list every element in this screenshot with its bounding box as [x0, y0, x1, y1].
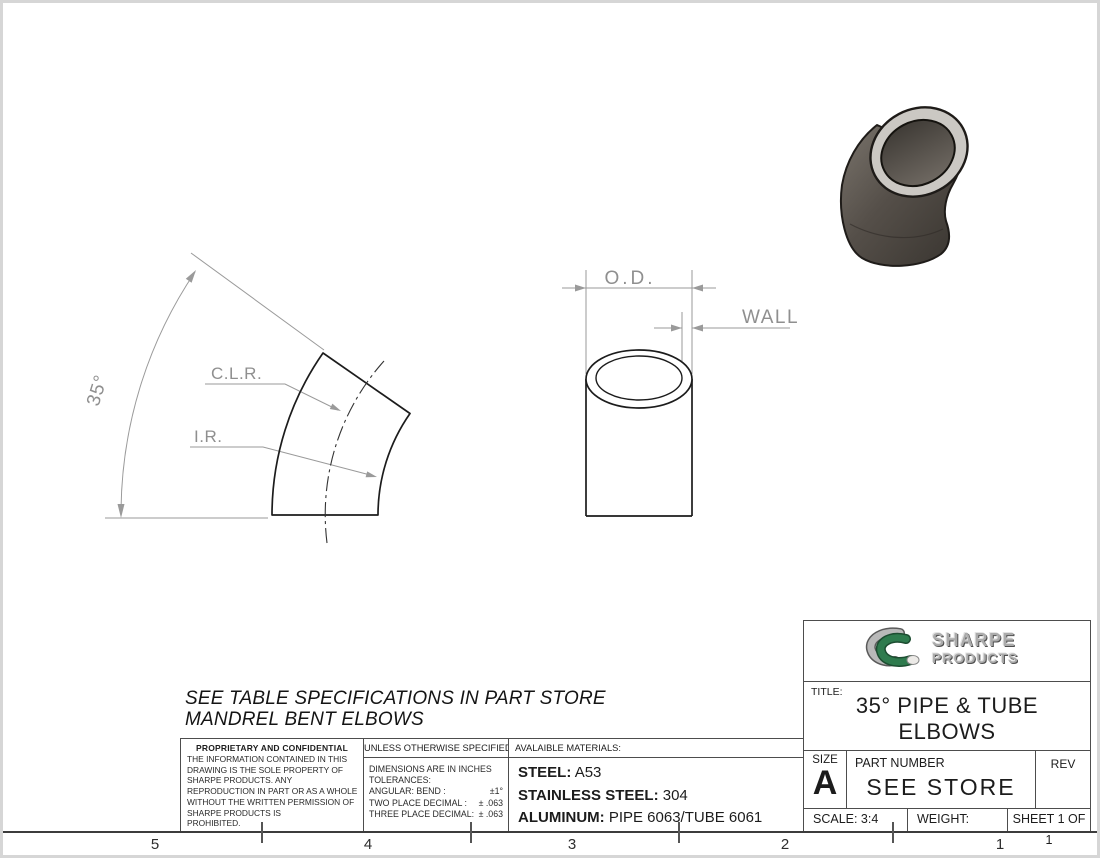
materials-block: AVALAIBLE MATERIALS: STEEL: A53 STAINLES… [508, 738, 804, 833]
drawing-title-line1: 35° PIPE & TUBE [804, 693, 1090, 719]
dimension-arrowheads [575, 285, 703, 332]
brand-name-top: SHARPE [932, 631, 1019, 649]
note-line-1: SEE TABLE SPECIFICATIONS IN PART STORE [185, 688, 606, 709]
proprietary-title: PROPRIETARY AND CONFIDENTIAL [187, 742, 357, 754]
material-label: STEEL: [518, 764, 571, 781]
material-item: STEEL: A53 [518, 762, 794, 785]
tolerance-intro: TOLERANCES: [369, 775, 503, 786]
elbow-outline [272, 353, 410, 515]
part-number-cell: PART NUMBER SEE STORE [847, 751, 1036, 808]
proprietary-text: SHARPE PRODUCTS. ANY [187, 775, 357, 786]
drawing-note: SEE TABLE SPECIFICATIONS IN PART STORE M… [185, 688, 606, 730]
materials-header: AVALAIBLE MATERIALS: [509, 739, 803, 758]
zone-label: 2 [770, 836, 800, 853]
zone-label: 1 [985, 836, 1015, 853]
brand-name-bottom: PRODUCTS [932, 651, 1019, 665]
tolerance-row: ANGULAR: BEND : ±1° [369, 786, 503, 797]
material-value: PIPE 6063/TUBE 6061 [609, 809, 762, 826]
zone-label: 3 [557, 836, 587, 853]
tolerance-intro: DIMENSIONS ARE IN INCHES [369, 764, 503, 775]
weight-label: WEIGHT: [908, 809, 1008, 831]
rev-cell: REV [1036, 751, 1090, 808]
dimension-arrowheads [118, 270, 378, 518]
scale-row: SCALE: 3:4 WEIGHT: SHEET 1 OF 1 [804, 809, 1090, 831]
clr-label: C.L.R. [211, 364, 262, 383]
zone-label: 5 [140, 836, 170, 853]
title-block: SHARPE PRODUCTS TITLE: 35° PIPE & TUBE E… [803, 620, 1091, 832]
proprietary-text: SHARPE PRODUCTS IS [187, 808, 357, 819]
part-number-value: SEE STORE [847, 774, 1035, 801]
drawing-title: 35° PIPE & TUBE ELBOWS [804, 682, 1090, 745]
size-value: A [804, 766, 846, 800]
elbow-bend-view: 35° C.L.R. I.R. [80, 240, 480, 560]
rev-label: REV [1036, 757, 1090, 771]
tolerance-row: THREE PLACE DECIMAL: ± .063 [369, 809, 503, 820]
material-label: STAINLESS STEEL: [518, 787, 659, 804]
zone-tick [261, 822, 263, 843]
proprietary-text: WITHOUT THE WRITTEN PERMISSION OF [187, 797, 357, 808]
material-label: ALUMINUM: [518, 809, 605, 826]
tolerance-label: TWO PLACE DECIMAL : [369, 798, 467, 809]
brand-row: SHARPE PRODUCTS [804, 621, 1090, 682]
wall-label: WALL [742, 307, 799, 328]
size-cell: SIZE A [804, 751, 847, 808]
tolerances-block: UNLESS OTHERWISE SPECIFIED: DIMENSIONS A… [363, 738, 509, 833]
title-row: TITLE: 35° PIPE & TUBE ELBOWS [804, 682, 1090, 751]
tolerance-label: THREE PLACE DECIMAL: [369, 809, 474, 820]
angle-dimension-label: 35° [83, 372, 112, 408]
tolerance-value: ±1° [490, 786, 503, 797]
engineering-drawing-sheet: 35° C.L.R. I.R. O.D. WALL [0, 0, 1100, 858]
part-number-label: PART NUMBER [855, 756, 945, 770]
zone-tick [470, 822, 472, 843]
material-item: ALUMINUM: PIPE 6063/TUBE 6061 [518, 807, 794, 830]
drawing-title-line2: ELBOWS [804, 719, 1090, 745]
part-number-row: SIZE A PART NUMBER SEE STORE REV [804, 751, 1090, 809]
title-label: TITLE: [811, 686, 843, 698]
proprietary-text: PROHIBITED. [187, 818, 357, 829]
tolerance-row: TWO PLACE DECIMAL : ± .063 [369, 798, 503, 809]
sharpe-logo-icon [864, 626, 926, 676]
proprietary-text: DRAWING IS THE SOLE PROPERTY OF [187, 765, 357, 776]
proprietary-block: PROPRIETARY AND CONFIDENTIAL THE INFORMA… [180, 738, 364, 833]
tube-section-view: O.D. WALL [540, 250, 820, 550]
material-value: A53 [575, 764, 602, 781]
frame-border-bottom [0, 831, 1100, 833]
proprietary-text: THE INFORMATION CONTAINED IN THIS [187, 754, 357, 765]
material-item: STAINLESS STEEL: 304 [518, 785, 794, 808]
tolerance-value: ± .063 [479, 798, 503, 809]
tube-outline [586, 350, 692, 516]
material-value: 304 [663, 787, 688, 804]
ir-label: I.R. [194, 427, 222, 446]
tolerances-header: UNLESS OTHERWISE SPECIFIED: [364, 739, 508, 758]
dimension-lines [105, 253, 374, 518]
proprietary-text: REPRODUCTION IN PART OR AS A WHOLE [187, 786, 357, 797]
tolerance-value: ± .063 [479, 809, 503, 820]
note-line-2: MANDREL BENT ELBOWS [185, 709, 606, 730]
zone-tick [678, 822, 680, 843]
zone-tick [892, 822, 894, 843]
tolerance-label: ANGULAR: BEND : [369, 786, 446, 797]
od-label: O.D. [604, 268, 655, 289]
elbow-3d-render [825, 85, 985, 280]
brand-wordmark: SHARPE PRODUCTS [932, 631, 1019, 665]
zone-label: 4 [353, 836, 383, 853]
sheet-count: SHEET 1 OF 1 [1008, 809, 1090, 831]
